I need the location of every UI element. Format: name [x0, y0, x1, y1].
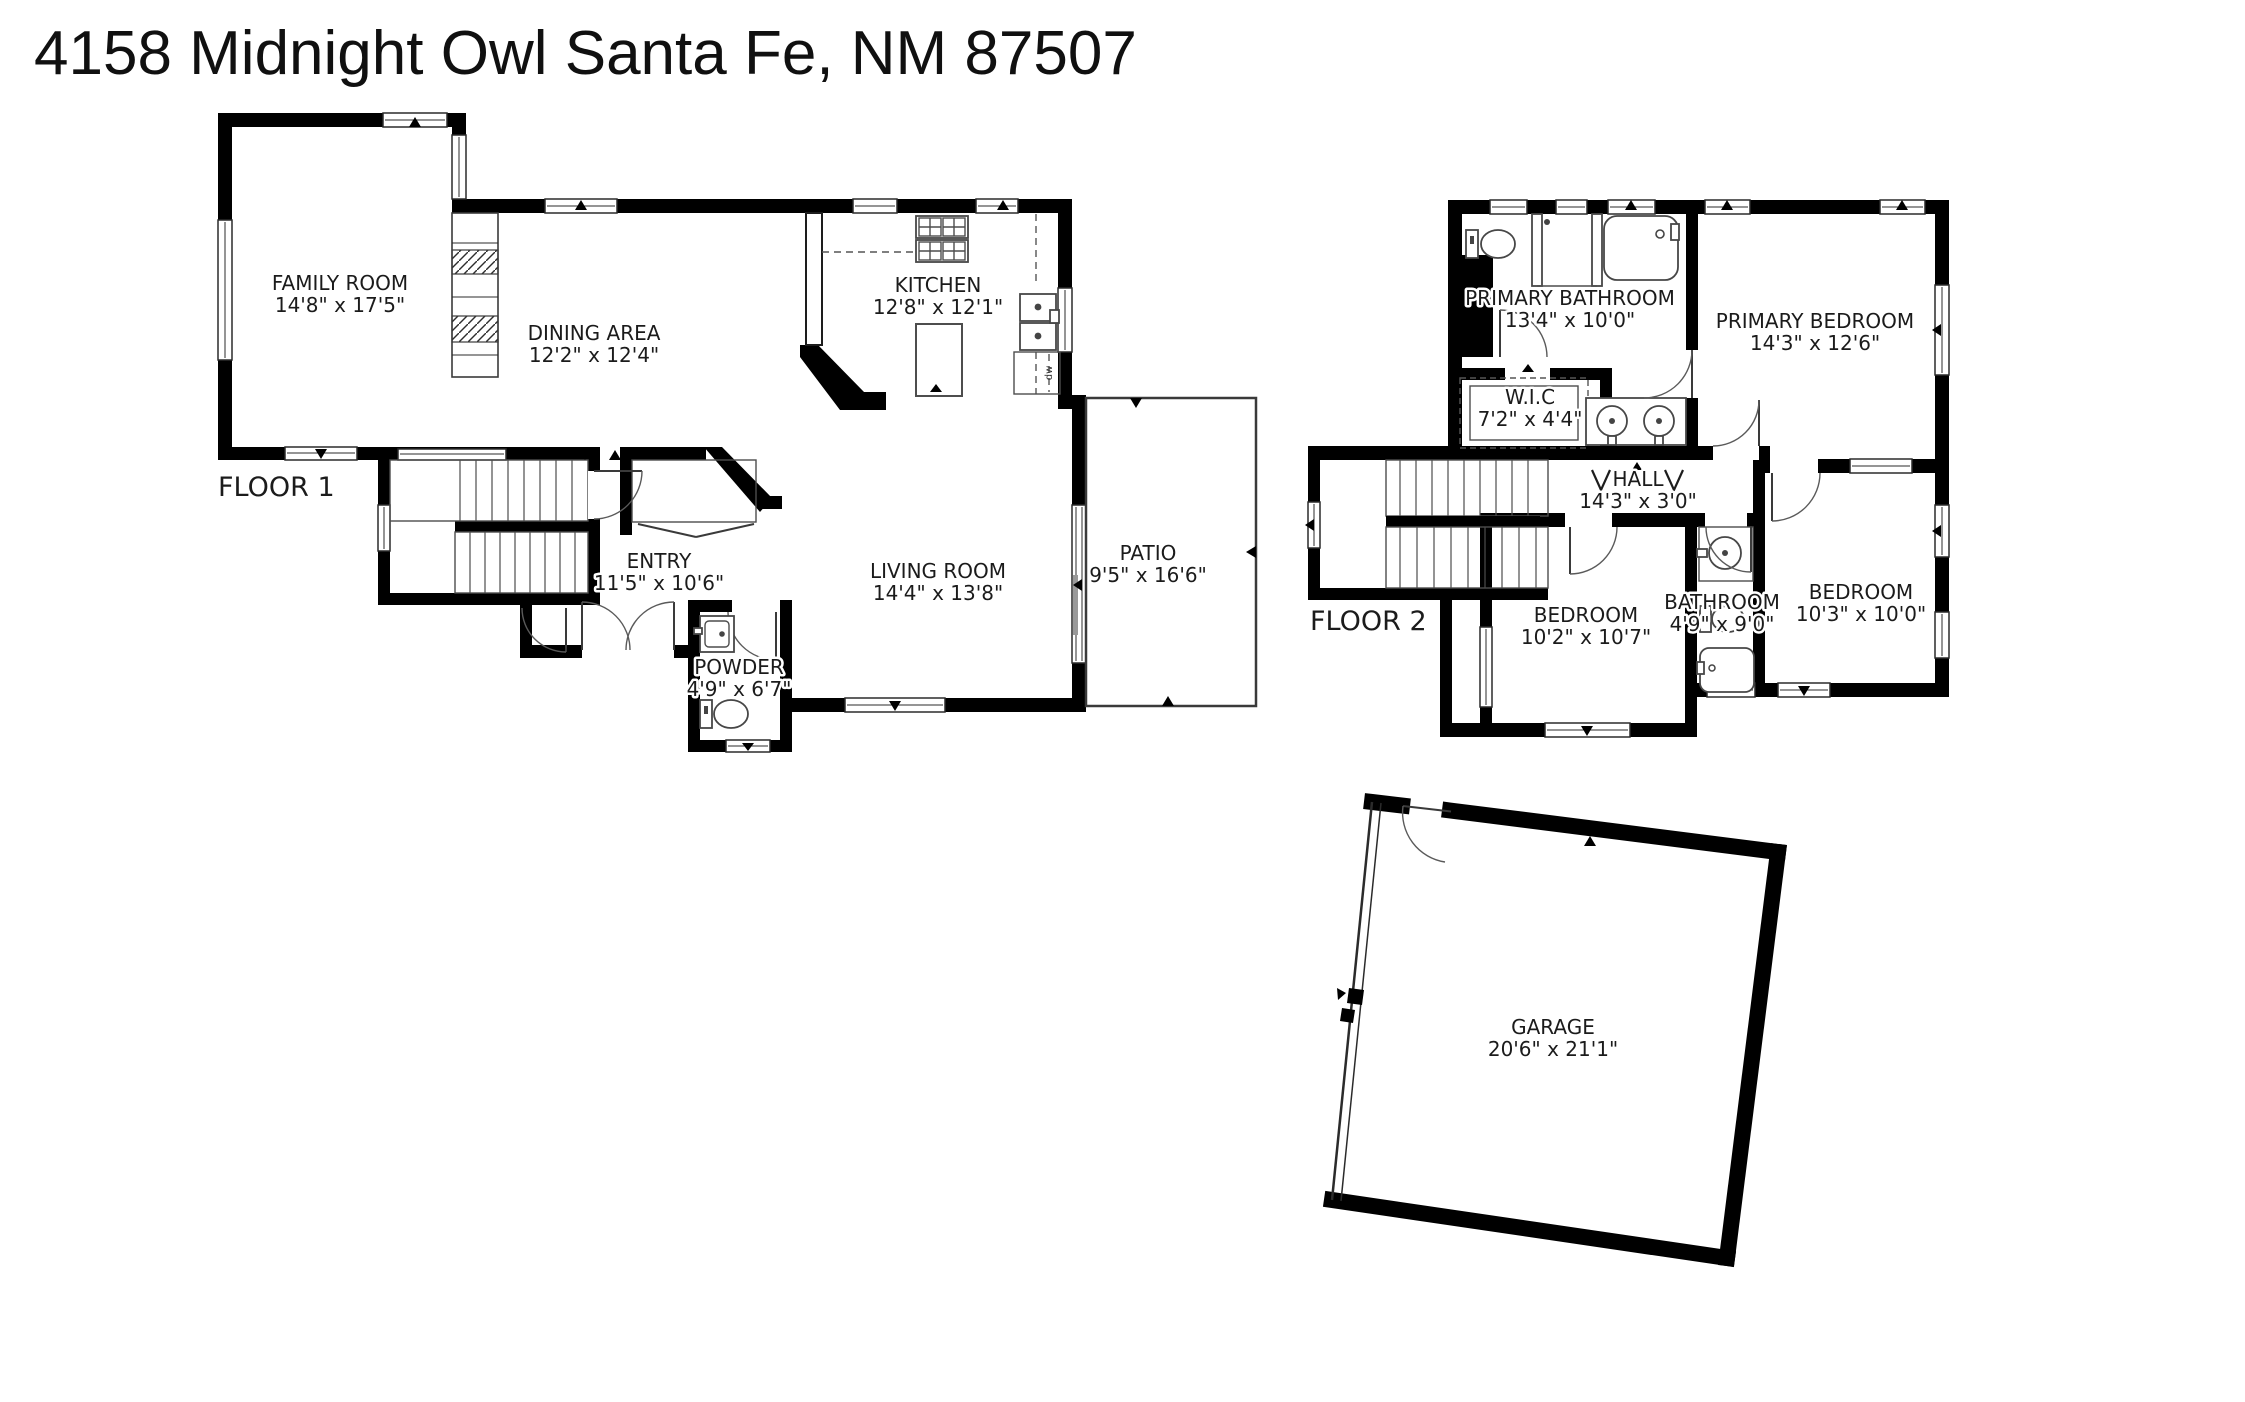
room-name: GARAGE: [1511, 1015, 1595, 1039]
room-dims: 14'3" x 12'6": [1750, 331, 1880, 355]
room-label-powder: POWDER 4'9" x 6'7": [687, 655, 792, 701]
room-dims: 10'3" x 10'0": [1796, 602, 1926, 626]
room-dims: 20'6" x 21'1": [1488, 1037, 1618, 1061]
room-name: POWDER: [694, 655, 784, 679]
floor-plan-svg: 4158 Midnight Owl Santa Fe, NM 87507: [0, 0, 2245, 1402]
room-label-bedroom-right: BEDROOM 10'3" x 10'0": [1796, 580, 1926, 626]
room-dims: 9'5" x 16'6": [1089, 563, 1207, 587]
room-dims: 4'9" x 6'7": [687, 677, 792, 701]
pantry-wall: [806, 213, 822, 345]
fireplace-icon: [452, 213, 498, 377]
primary-toilet-icon: [1466, 230, 1515, 258]
room-name: DINING AREA: [528, 321, 661, 345]
double-vanity-icon: [1586, 398, 1686, 445]
powder-sink-icon: [694, 616, 734, 652]
room-label-living-room: LIVING ROOM 14'4" x 13'8": [870, 559, 1006, 605]
bathtub-icon-bathroom2: [1697, 648, 1754, 692]
floor2-label: FLOOR 2: [1310, 606, 1427, 637]
room-dims: 4'9" x 9'0": [1670, 612, 1775, 636]
room-name: KITCHEN: [895, 273, 982, 297]
room-label-dining-area: DINING AREA 12'2" x 12'4": [528, 321, 661, 367]
room-name: FAMILY ROOM: [272, 271, 408, 295]
room-name: BATHROOM: [1664, 590, 1780, 614]
room-dims: 11'5" x 10'6": [594, 571, 724, 595]
room-label-bedroom-left: BEDROOM 10'2" x 10'7": [1521, 603, 1651, 649]
room-name: ENTRY: [627, 549, 692, 573]
room-name: PATIO: [1120, 541, 1177, 565]
room-label-family-room: FAMILY ROOM 14'8" x 17'5": [272, 271, 408, 317]
bathtub-icon-primary: [1604, 216, 1679, 280]
dishwasher-label: dw: [1044, 366, 1055, 381]
room-name: HALL: [1612, 467, 1664, 491]
room-dims: 12'8" x 12'1": [873, 295, 1003, 319]
kitchen-island: [916, 324, 962, 396]
page-title: 4158 Midnight Owl Santa Fe, NM 87507: [34, 19, 1137, 88]
room-label-bathroom: BATHROOM 4'9" x 9'0": [1664, 590, 1780, 636]
room-name: BEDROOM: [1534, 603, 1638, 627]
floor-plan-page: 4158 Midnight Owl Santa Fe, NM 87507: [0, 0, 2245, 1402]
room-name: W.I.C: [1505, 385, 1555, 409]
room-dims: 13'4" x 10'0": [1505, 308, 1635, 332]
room-name: PRIMARY BATHROOM: [1465, 286, 1675, 310]
room-dims: 7'2" x 4'4": [1478, 407, 1583, 431]
room-dims: 14'4" x 13'8": [873, 581, 1003, 605]
room-name: BEDROOM: [1809, 580, 1913, 604]
room-dims: 14'3" x 3'0": [1579, 489, 1697, 513]
floor1-label: FLOOR 1: [218, 472, 335, 503]
room-dims: 14'8" x 17'5": [275, 293, 405, 317]
room-name: PRIMARY BEDROOM: [1716, 309, 1914, 333]
powder-toilet-icon: [700, 700, 748, 728]
room-name: LIVING ROOM: [870, 559, 1006, 583]
room-dims: 12'2" x 12'4": [529, 343, 659, 367]
room-dims: 10'2" x 10'7": [1521, 625, 1651, 649]
